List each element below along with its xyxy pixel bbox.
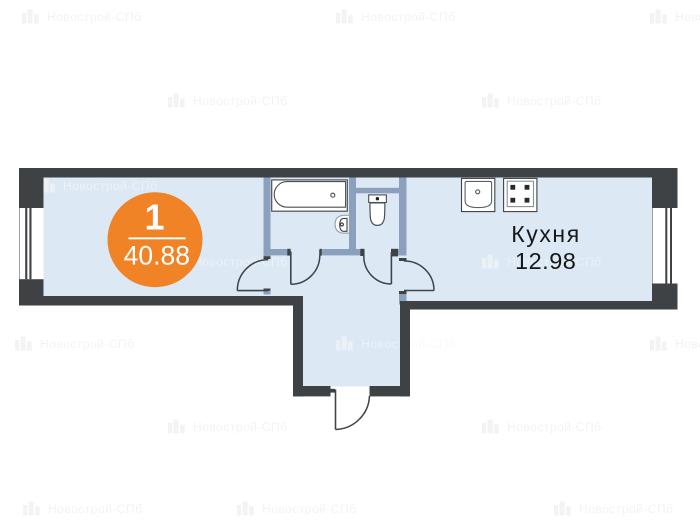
svg-text:40.88: 40.88 [124, 240, 190, 270]
svg-text:Новострой-СПб: Новострой-СПб [675, 337, 700, 351]
svg-text:Новострой-СПб: Новострой-СПб [507, 94, 602, 108]
svg-text:Новострой-СПб: Новострой-СПб [48, 502, 143, 516]
svg-text:Новострой-СПб: Новострой-СПб [193, 255, 288, 269]
svg-text:Новострой-СПб: Новострой-СПб [507, 420, 602, 434]
svg-text:Новострой-СПб: Новострой-СПб [579, 502, 674, 516]
svg-text:Новострой-СПб: Новострой-СПб [262, 502, 357, 516]
svg-text:Новострой-СПб: Новострой-СПб [193, 420, 288, 434]
svg-text:Новострой-СПб: Новострой-СПб [675, 10, 700, 24]
svg-text:Новострой-СПб: Новострой-СПб [193, 94, 288, 108]
svg-text:Новострой-СПб: Новострой-СПб [63, 179, 158, 193]
svg-text:Новострой-СПб: Новострой-СПб [361, 10, 456, 24]
svg-text:Новострой-СПб: Новострой-СПб [40, 337, 135, 351]
svg-text:12.98: 12.98 [515, 248, 576, 274]
svg-text:Кухня: Кухня [511, 221, 581, 247]
svg-text:Новострой-СПб: Новострой-СПб [47, 10, 142, 24]
svg-text:1: 1 [144, 196, 164, 237]
